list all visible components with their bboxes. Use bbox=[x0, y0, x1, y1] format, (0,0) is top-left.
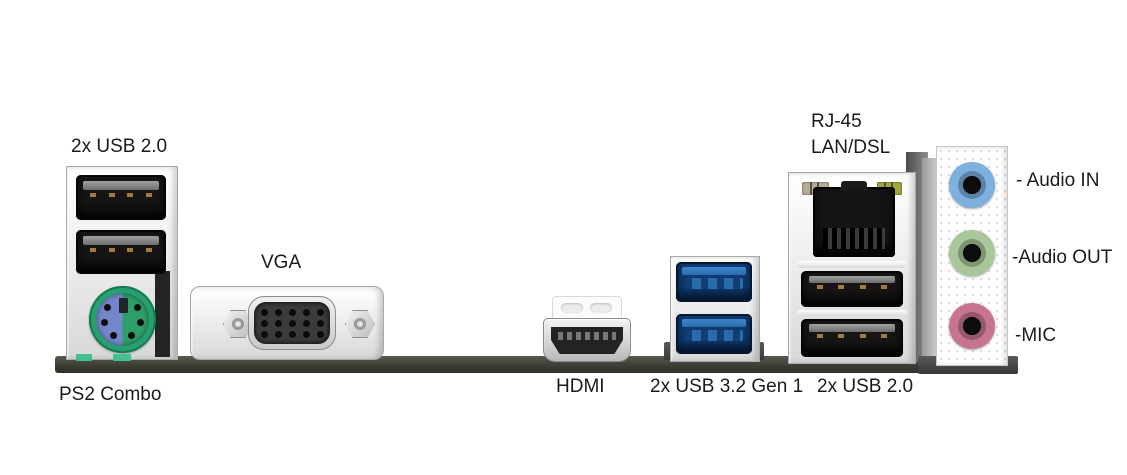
usb2-port-top bbox=[76, 175, 166, 220]
bracket-divider bbox=[797, 310, 907, 316]
label-ps2: PS2 Combo bbox=[59, 383, 161, 408]
usb2-port-bottom bbox=[76, 230, 166, 274]
label-mic: -MIC bbox=[1015, 324, 1056, 349]
bracket-divider bbox=[797, 261, 907, 268]
audio-bracket-rail bbox=[922, 158, 936, 362]
audio-panel bbox=[936, 146, 1008, 366]
usb3-port-bottom bbox=[676, 314, 752, 354]
label-usb2-left: 2x USB 2.0 bbox=[71, 135, 167, 160]
lan-usb-bracket bbox=[788, 172, 916, 364]
bracket-clip bbox=[76, 354, 92, 361]
label-vga: VGA bbox=[261, 251, 301, 276]
rj45-port bbox=[813, 187, 895, 257]
label-hdmi: HDMI bbox=[556, 375, 605, 400]
usb2-port-right-top bbox=[801, 271, 903, 307]
label-audio-in: - Audio IN bbox=[1016, 169, 1099, 194]
vga-port bbox=[248, 296, 336, 350]
usb3-bracket bbox=[670, 256, 760, 362]
usb3-port-top bbox=[676, 262, 752, 302]
label-usb32: 2x USB 3.2 Gen 1 bbox=[650, 375, 803, 400]
label-rj45-line1: RJ-45 bbox=[811, 110, 862, 135]
motherboard-io-panel: 2x USB 2.0 PS2 Combo VGA HDMI 2x USB 3.2… bbox=[0, 0, 1127, 475]
bracket-clip bbox=[113, 354, 131, 361]
usb2-port-right-bottom bbox=[801, 319, 903, 357]
hdmi-port bbox=[543, 318, 631, 362]
ps2-combo-port bbox=[89, 286, 156, 353]
vga-screw-right bbox=[345, 310, 375, 338]
label-usb2-right: 2x USB 2.0 bbox=[817, 375, 913, 400]
usb2-ps2-bracket bbox=[66, 166, 178, 360]
audio-in-jack bbox=[949, 162, 995, 208]
label-audio-out: -Audio OUT bbox=[1012, 246, 1112, 271]
vga-bracket bbox=[190, 286, 384, 360]
audio-out-jack bbox=[949, 230, 995, 276]
ps2-housing-shadow bbox=[155, 271, 170, 357]
mic-jack bbox=[949, 303, 995, 349]
label-rj45-line2: LAN/DSL bbox=[811, 136, 890, 161]
